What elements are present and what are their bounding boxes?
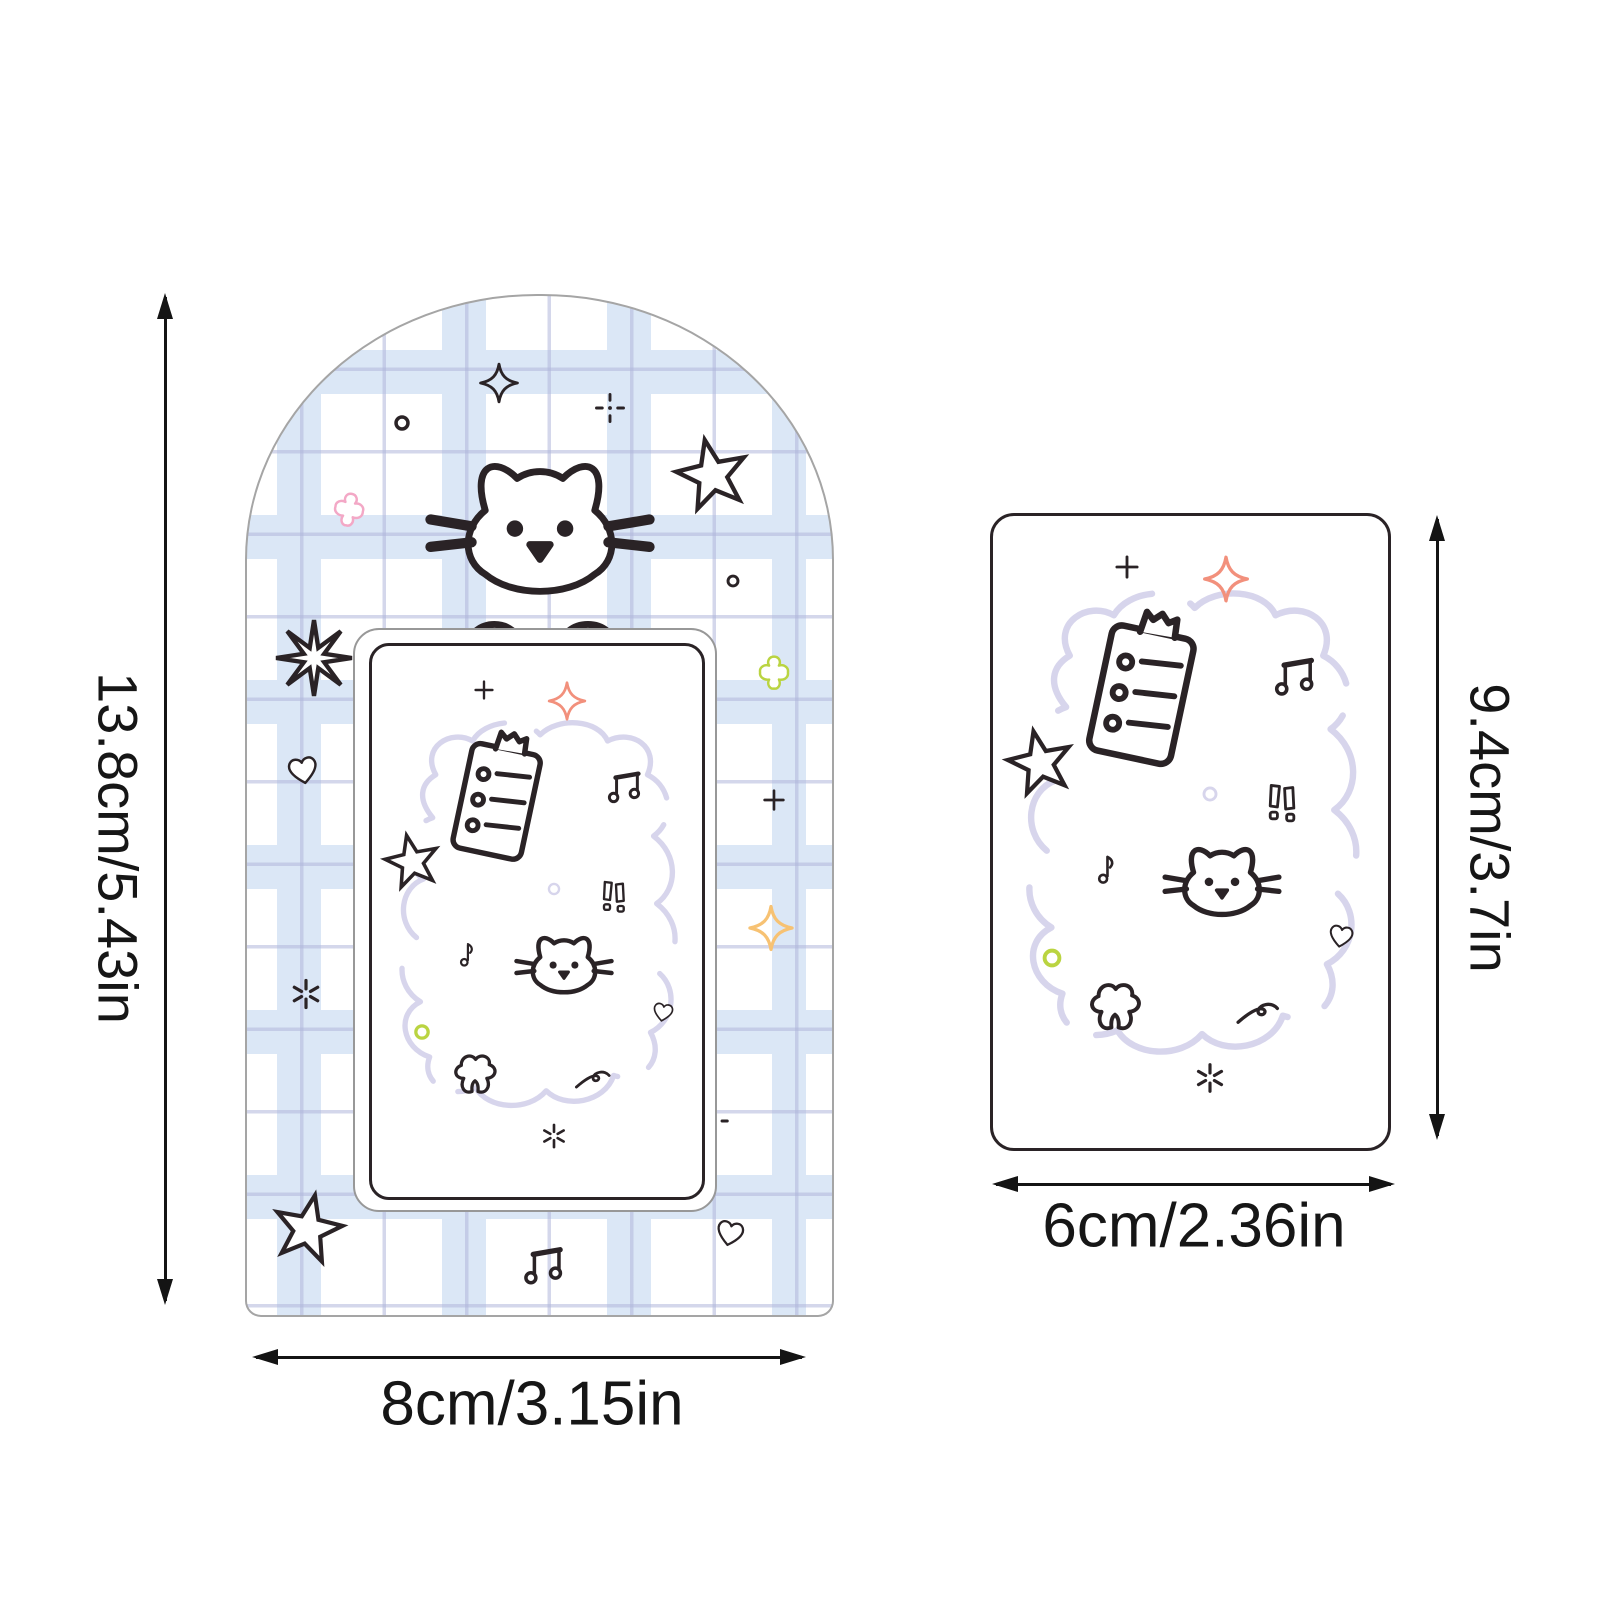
plus-icon: [1112, 551, 1144, 583]
squiggle-icon: [570, 1053, 616, 1099]
exclamation-icon: [592, 878, 635, 921]
sparkle-dots-icon: [1194, 1063, 1226, 1095]
star-icon: [998, 720, 1082, 804]
sparkle-dots-icon: [289, 978, 321, 1010]
dot-icon: [1201, 785, 1219, 803]
cat-icon: [1163, 830, 1282, 949]
burst-star-icon: [275, 618, 354, 697]
photocard-holder-figure: [245, 294, 834, 1317]
exclamation-icon: [1256, 781, 1307, 832]
star-icon: [377, 826, 447, 896]
holder-width-label: 8cm/3.15in: [380, 1369, 683, 1440]
star-icon: [263, 1183, 353, 1273]
sparkle-icon: [478, 362, 519, 403]
card-height-label: 9.4cm/3.7in: [1458, 683, 1523, 973]
music-note-icon: [1082, 848, 1125, 891]
card-width-label: 6cm/2.36in: [1042, 1191, 1345, 1262]
sparkle-icon: [1202, 555, 1249, 602]
plus-icon: [759, 786, 788, 815]
size-chart-diagram: 13.8cm/5.43in 8cm/3.15in 9.4cm/3.7in 6cm…: [0, 0, 1600, 1600]
dot-icon: [546, 881, 561, 896]
sparkle-dots-icon: [541, 1123, 567, 1149]
heart-icon: [1321, 917, 1360, 956]
plus-sparkle-icon: [594, 392, 626, 424]
heart-icon: [707, 1211, 752, 1256]
sparkle-icon: [747, 904, 794, 951]
music-note-icon: [446, 936, 482, 972]
card-doodle-layer: [372, 646, 702, 1196]
flower-icon: [1080, 973, 1151, 1044]
clover-icon: [753, 653, 794, 694]
music-notes-icon: [598, 765, 647, 814]
dot-icon: [1041, 948, 1063, 970]
flower-icon: [445, 1046, 504, 1105]
dot-icon: [413, 1023, 431, 1041]
plus-icon: [471, 677, 497, 703]
sparkle-icon: [547, 682, 587, 722]
dot-icon: [393, 415, 411, 433]
inserted-card: [369, 643, 705, 1199]
heart-icon: [646, 996, 678, 1028]
music-notes-icon: [513, 1240, 572, 1299]
star-icon: [665, 427, 759, 521]
card-doodle-layer: [993, 516, 1388, 1148]
card-height-arrow: [1429, 515, 1445, 1140]
music-notes-icon: [1264, 651, 1323, 710]
holder-width-arrow: [252, 1349, 806, 1365]
photocard-figure: [990, 513, 1391, 1151]
squiggle-icon: [1230, 981, 1285, 1036]
holder-height-arrow: [157, 293, 173, 1305]
holder-height-label: 13.8cm/5.43in: [86, 672, 151, 1024]
cat-icon: [514, 922, 613, 1021]
clover-icon: [326, 486, 373, 533]
heart-icon: [279, 746, 326, 793]
dot-icon: [725, 574, 740, 589]
